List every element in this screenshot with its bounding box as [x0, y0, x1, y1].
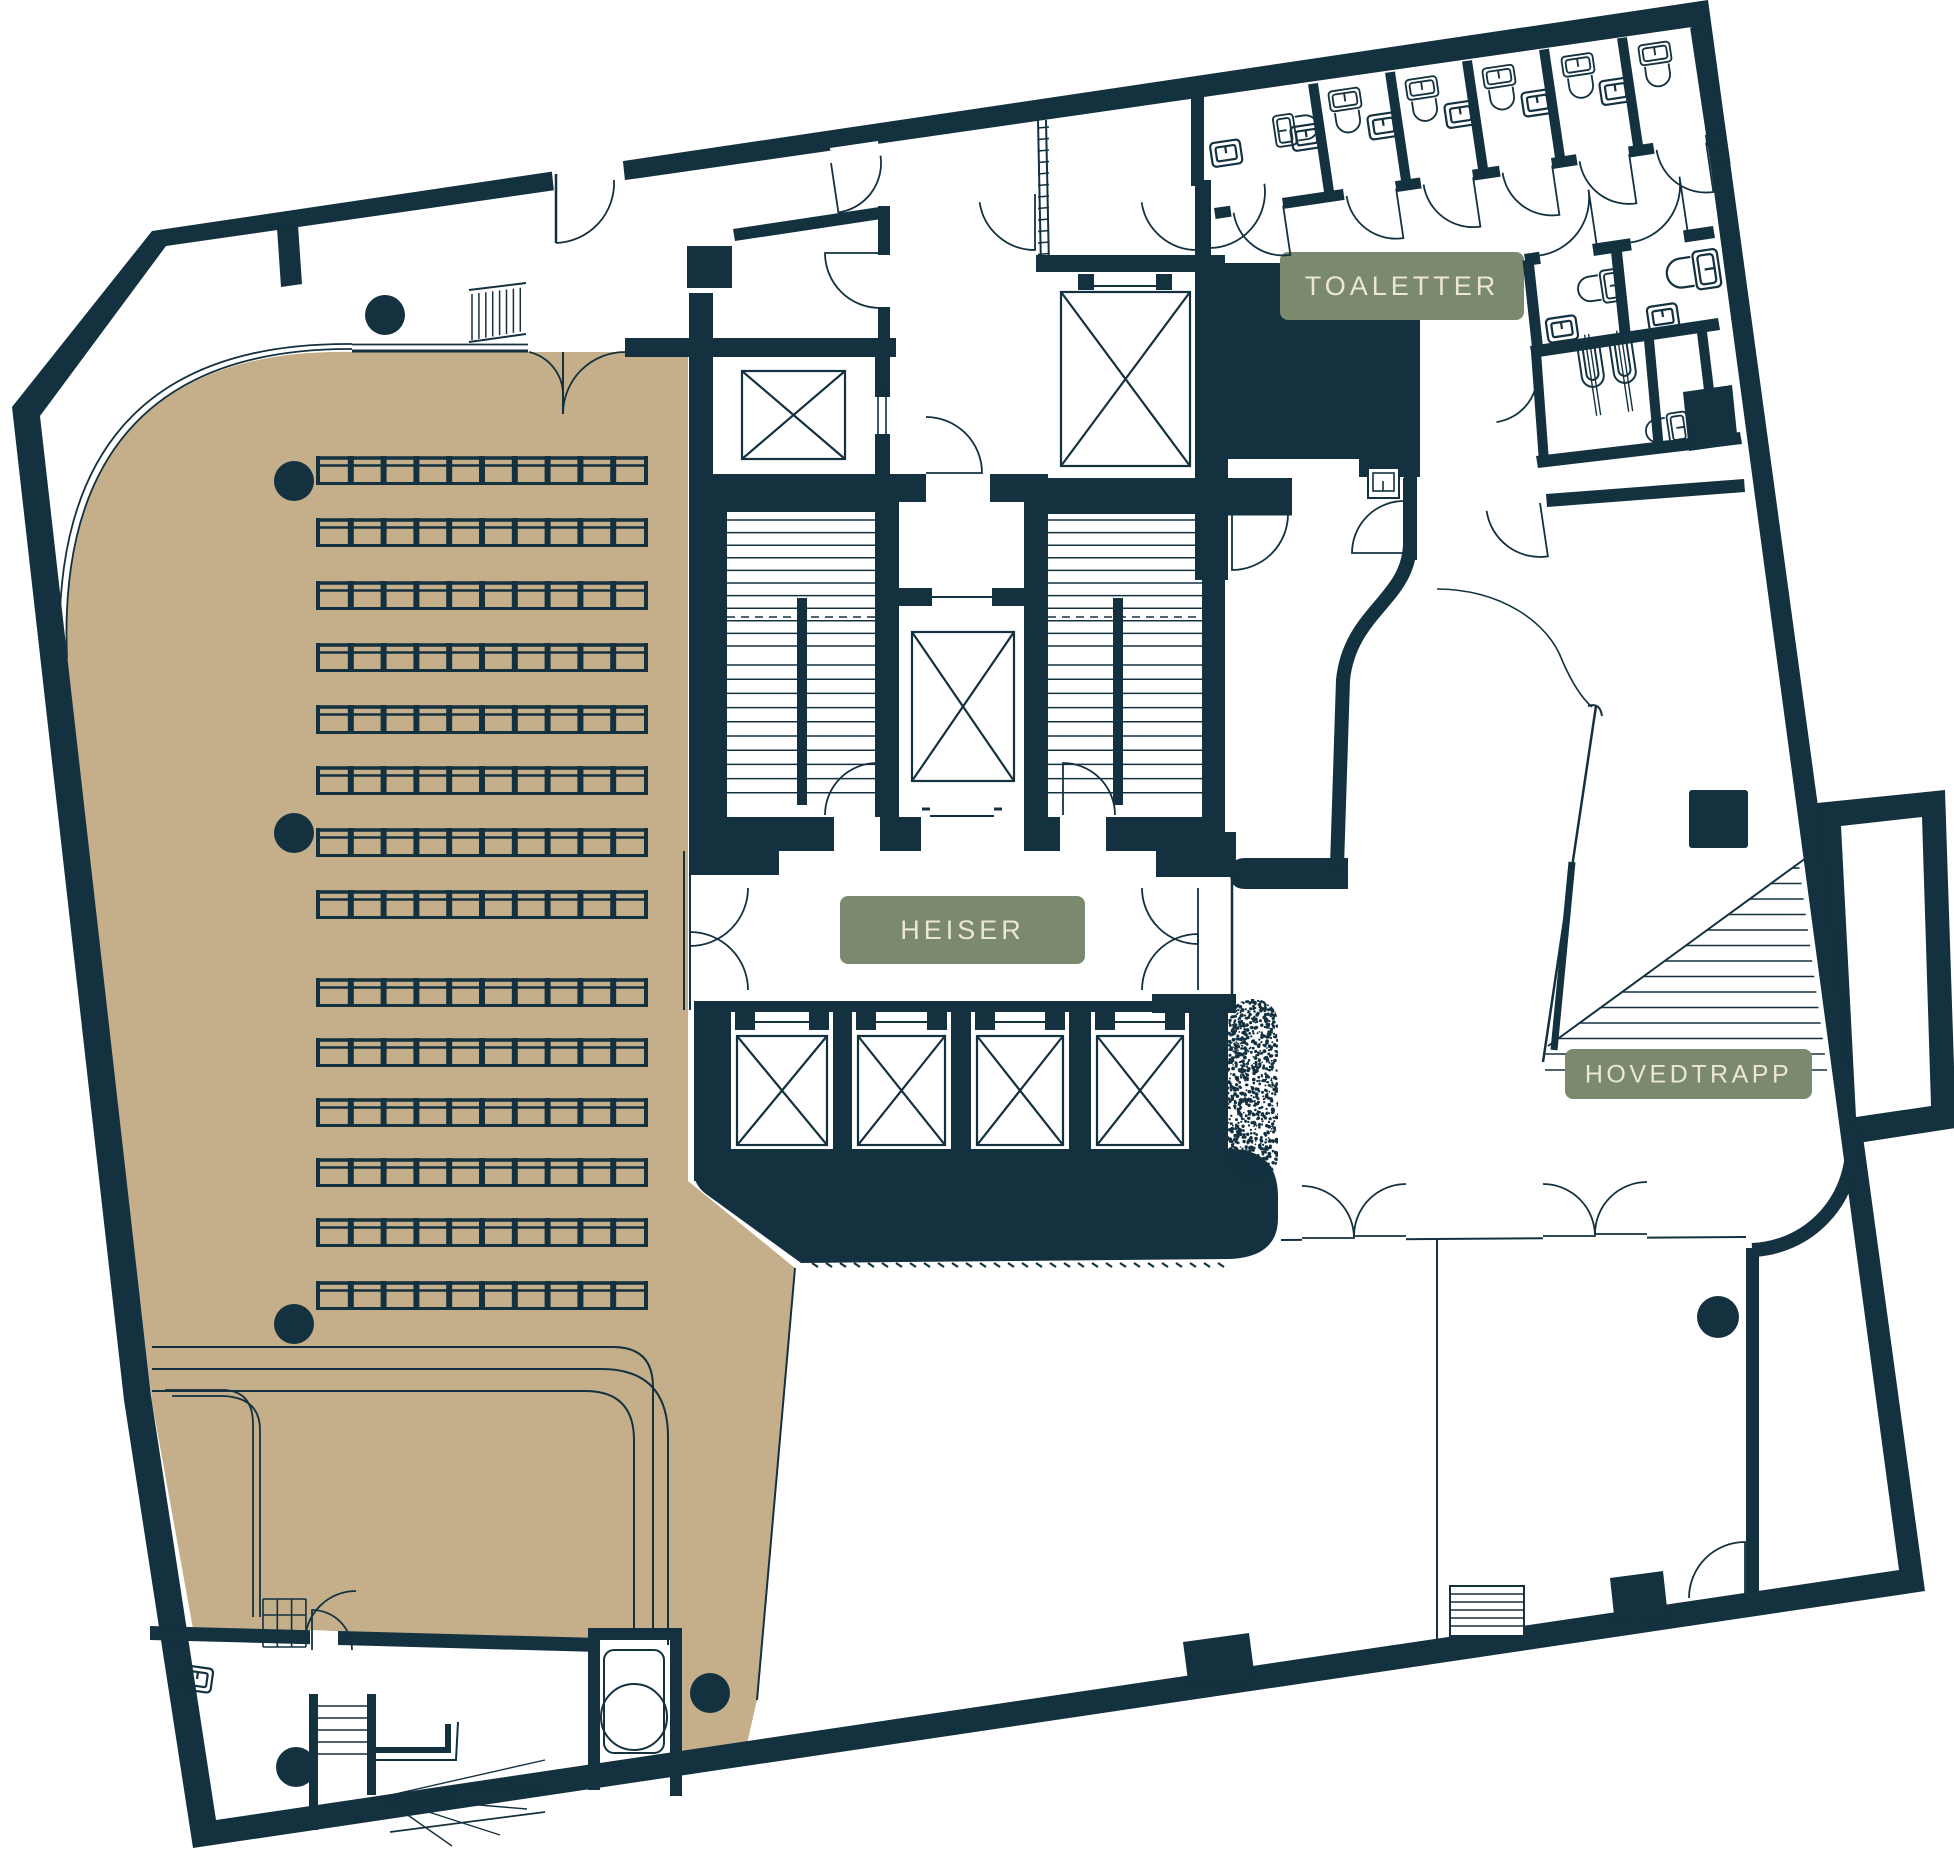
svg-text:HOVEDTRAPP: HOVEDTRAPP [1585, 1061, 1792, 1089]
svg-text:TOALETTER: TOALETTER [1305, 271, 1500, 301]
svg-text:HEISER: HEISER [900, 915, 1025, 945]
